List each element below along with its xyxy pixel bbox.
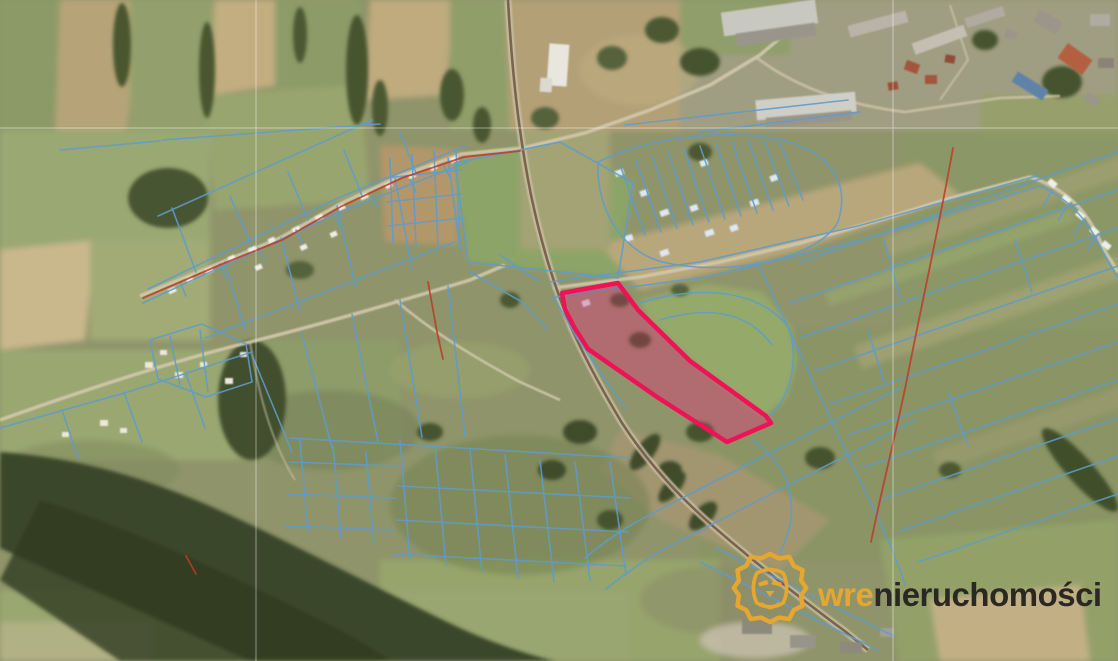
aerial-map: wrenieruchomości (0, 0, 1118, 661)
brand-suffix: nieruchomości (873, 576, 1101, 613)
aerial-map-screenshot: wrenieruchomości (0, 0, 1118, 661)
brand-watermark-text: wrenieruchomości (817, 576, 1102, 613)
brand-prefix: wre (817, 576, 874, 613)
